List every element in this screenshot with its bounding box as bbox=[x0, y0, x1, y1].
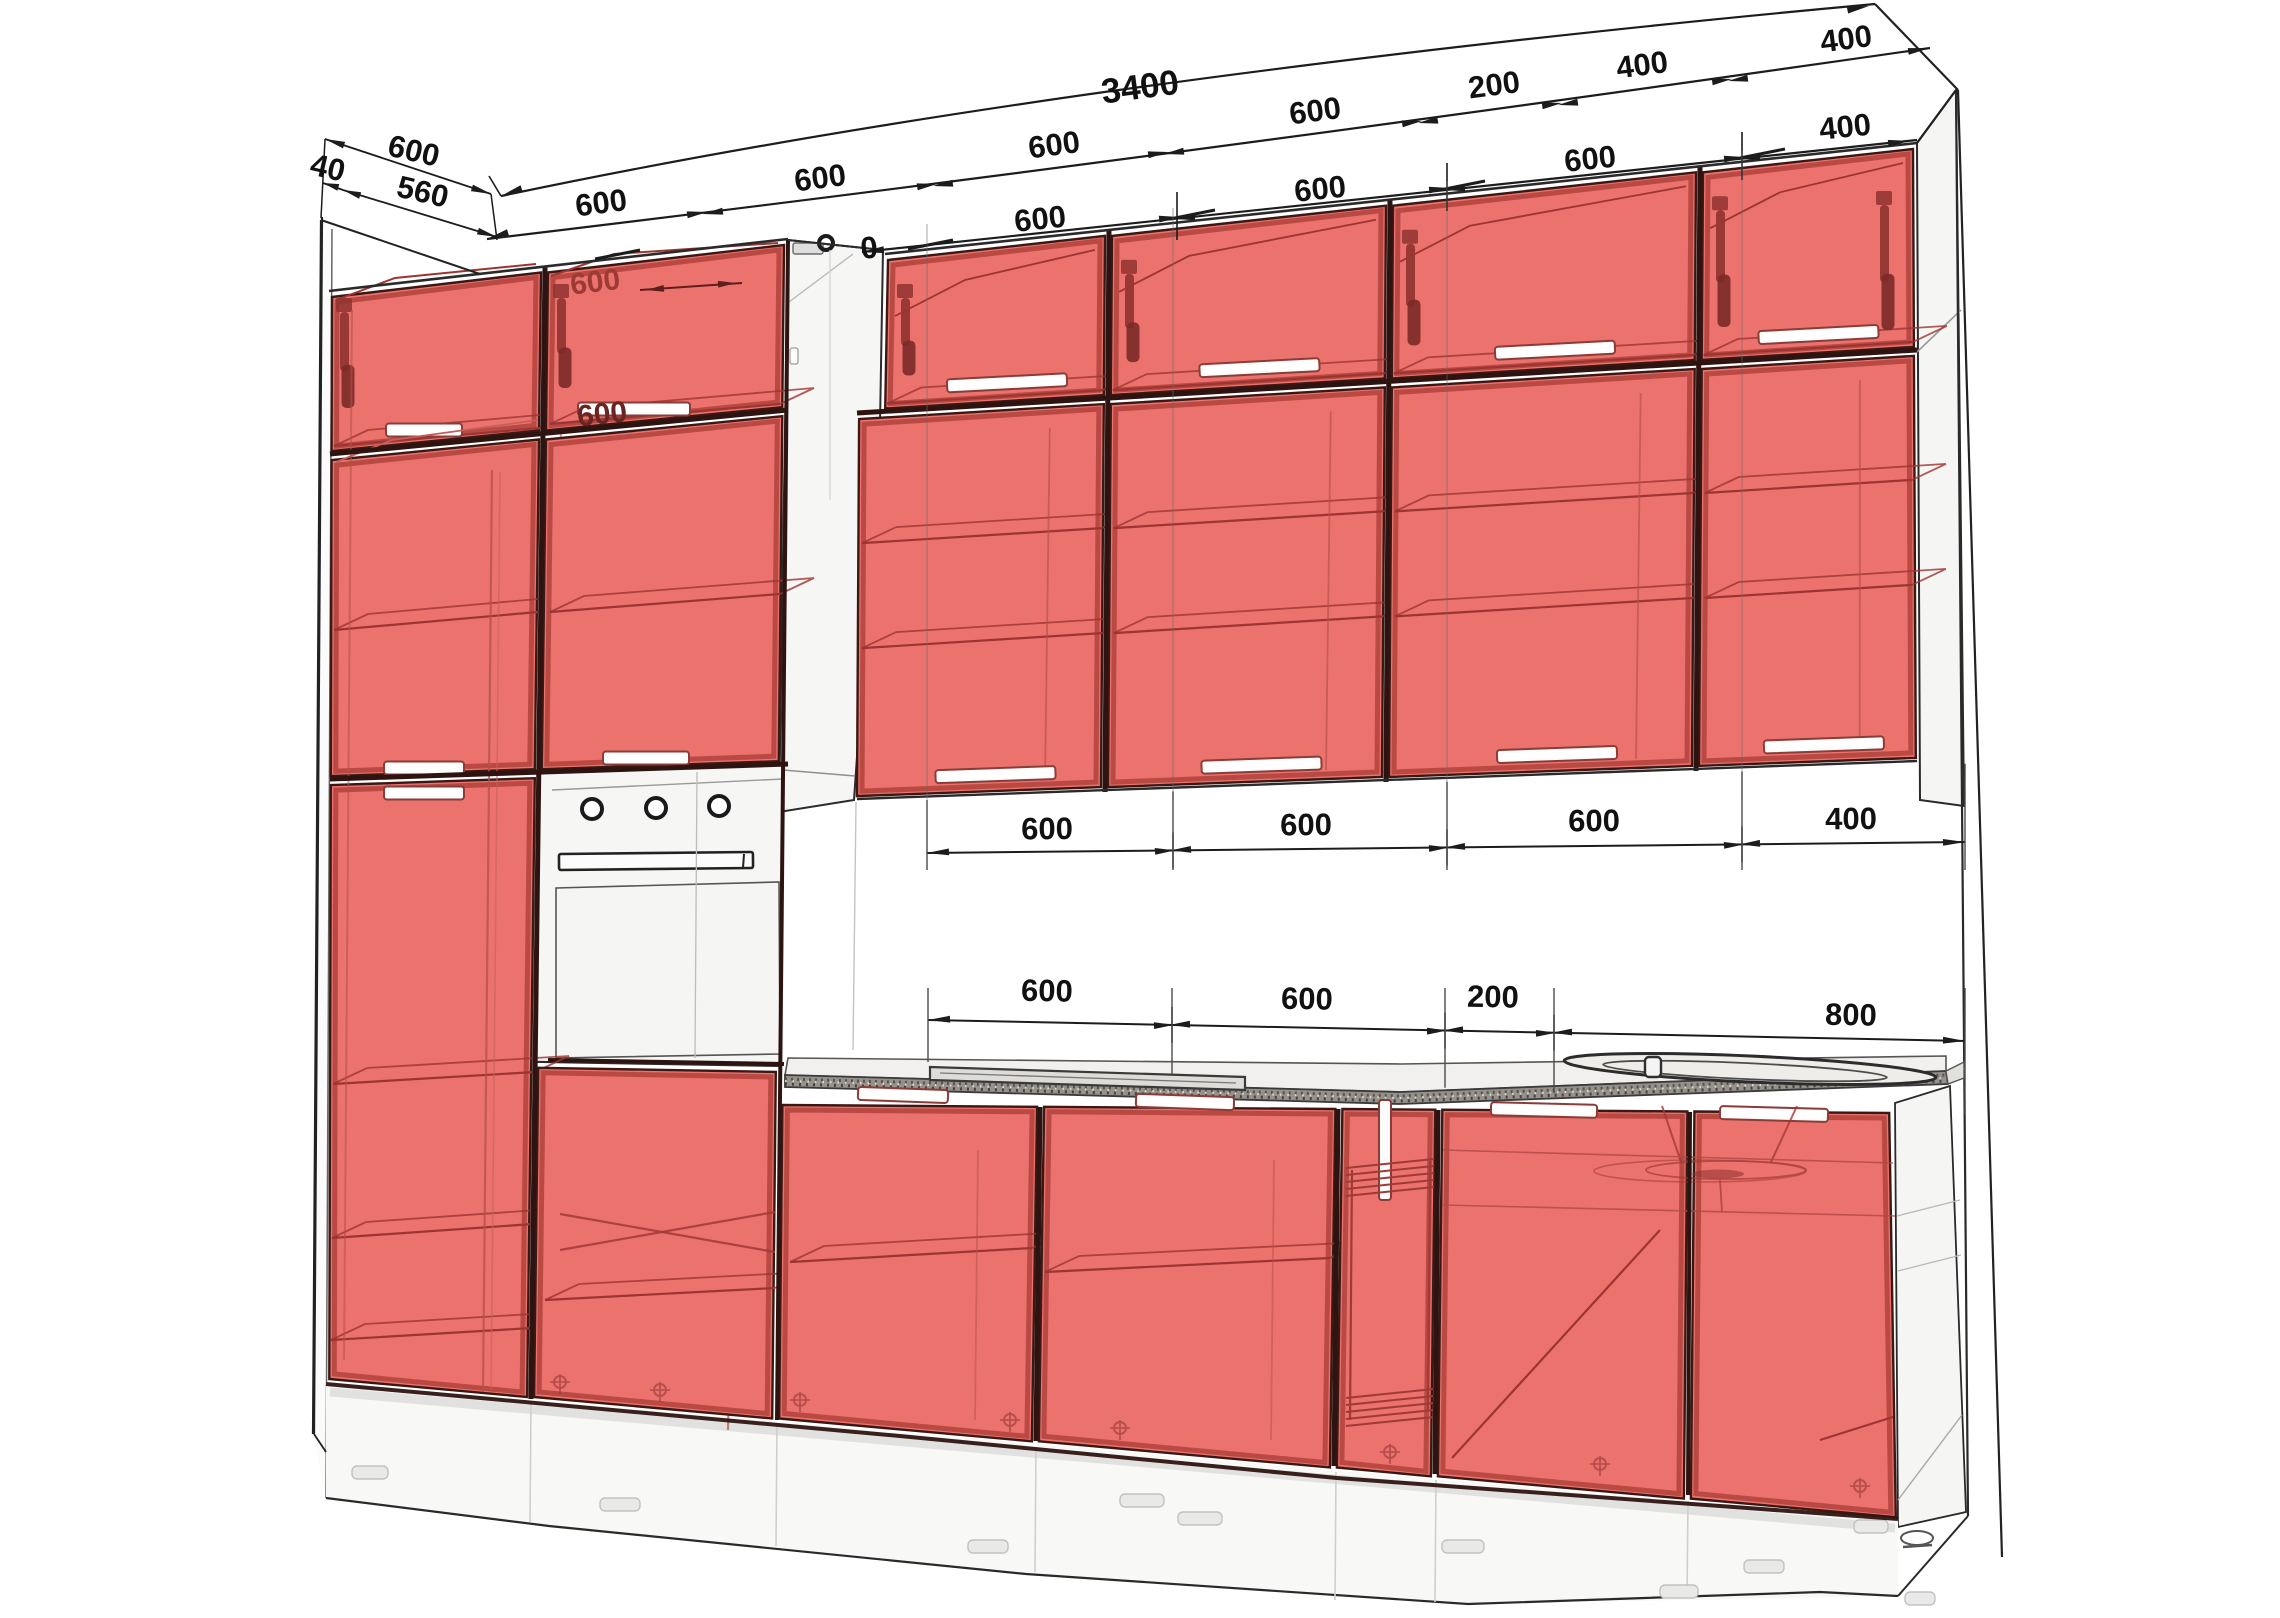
svg-text:400: 400 bbox=[1818, 107, 1873, 147]
svg-text:600: 600 bbox=[792, 157, 848, 198]
svg-text:600: 600 bbox=[1026, 124, 1082, 165]
svg-text:600: 600 bbox=[568, 263, 622, 302]
svg-text:600: 600 bbox=[1013, 199, 1068, 239]
svg-text:800: 800 bbox=[1825, 997, 1877, 1033]
svg-text:400: 400 bbox=[1818, 18, 1874, 59]
svg-text:200: 200 bbox=[1466, 64, 1522, 105]
svg-text:600: 600 bbox=[1281, 981, 1333, 1017]
svg-text:600: 600 bbox=[573, 182, 629, 223]
svg-text:200: 200 bbox=[1467, 979, 1519, 1015]
svg-text:600: 600 bbox=[1287, 90, 1343, 131]
svg-text:600: 600 bbox=[1280, 807, 1332, 842]
svg-text:600: 600 bbox=[1021, 973, 1073, 1009]
svg-text:400: 400 bbox=[1614, 44, 1670, 85]
svg-text:600: 600 bbox=[1563, 139, 1618, 179]
svg-text:0: 0 bbox=[859, 229, 880, 266]
svg-text:400: 400 bbox=[1825, 801, 1877, 836]
svg-text:600: 600 bbox=[1568, 803, 1620, 838]
svg-text:600: 600 bbox=[1021, 811, 1073, 846]
svg-text:600: 600 bbox=[1293, 169, 1348, 209]
